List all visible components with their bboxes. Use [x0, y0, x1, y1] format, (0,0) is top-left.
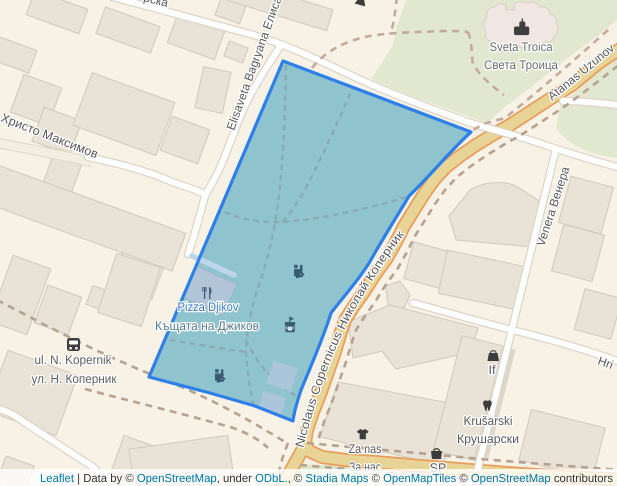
svg-text:Sveta Troica: Sveta Troica: [490, 40, 553, 54]
svg-text:Pizza Djikov: Pizza Djikov: [178, 300, 240, 314]
svg-text:Leaflet | Data by © OpenStreet: Leaflet | Data by © OpenStreetMap, under…: [40, 472, 613, 485]
svg-text:Za nas: Za nas: [349, 442, 382, 456]
svg-text:Къщата на Джиков: Къщата на Джиков: [155, 319, 259, 333]
svg-text:ul. N. Kopernik: ul. N. Kopernik: [35, 353, 113, 367]
svg-text:If: If: [489, 363, 496, 377]
svg-text:Крушарски: Крушарски: [457, 432, 519, 446]
svg-text:Света Троица: Света Троица: [484, 58, 558, 72]
svg-text:Krušarski: Krušarski: [464, 414, 513, 428]
svg-text:ул. Н. Коперник: ул. Н. Коперник: [32, 372, 117, 386]
